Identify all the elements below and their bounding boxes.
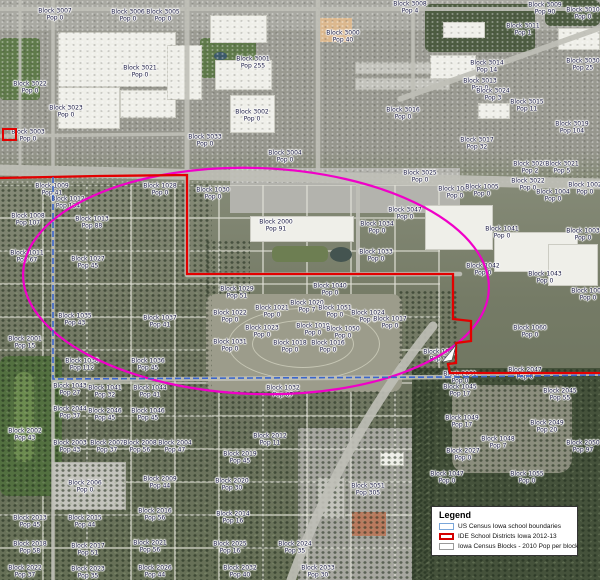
census-block-label: Block 2044 Pop 37 bbox=[53, 406, 86, 419]
census-block-label: Block 3019 Pop 104 bbox=[555, 121, 588, 134]
census-block-label: Block 2032 Pop 40 bbox=[223, 565, 256, 578]
census-block-label: Block 1044 Pop 41 bbox=[133, 385, 166, 398]
census-block-label: Block 1037 Pop 41 bbox=[143, 315, 176, 328]
census-block-label: Block 1005 Pop 0 bbox=[465, 184, 498, 197]
census-block-label: Block 3000 Pop 40 bbox=[326, 30, 359, 43]
legend-title: Legend bbox=[439, 510, 573, 520]
census-block-label: Block 2000 Pop 91 bbox=[259, 219, 292, 232]
legend-item-label: IDE School Districts Iowa 2012-13 bbox=[458, 533, 557, 540]
census-block-label: Block 1035 Pop 43 bbox=[58, 313, 91, 326]
census-block-label: Block 2046 Pop 45 bbox=[88, 408, 121, 421]
census-block-label: Block 2001 Pop 15 bbox=[8, 336, 41, 349]
census-block-label: Block 1051 Pop 0 bbox=[318, 305, 351, 318]
census-block-label: Block 3008 Pop 4 bbox=[393, 1, 426, 14]
census-block-label: Block 1028 Pop 0 bbox=[143, 183, 176, 196]
census-block-label: Block 3021 Pop 0 bbox=[123, 65, 156, 78]
census-block-label: Block 2017 Pop 51 bbox=[71, 543, 104, 556]
gray-block-swatch bbox=[439, 543, 454, 550]
census-block-label: Block 2045 Pop 55 bbox=[543, 388, 576, 401]
census-block-label: Block 2016 Pop 56 bbox=[138, 508, 171, 521]
census-block-label: Block 2014 Pop 16 bbox=[216, 511, 249, 524]
legend-item-census-boundaries: US Census Iowa school boundaries bbox=[439, 523, 573, 530]
census-block-label: Block 3021 Pop 5 bbox=[545, 161, 578, 174]
census-block-label: Block 3023 Pop 0 bbox=[49, 105, 82, 118]
blue-boundary-swatch bbox=[439, 523, 454, 530]
census-block-label: Block 3011 Pop 1 bbox=[506, 23, 539, 36]
census-block-label: Block 2003 Pop 43 bbox=[53, 440, 86, 453]
census-block-label: Block 1032 Pop 67 bbox=[266, 385, 299, 398]
census-block-label: Block 1046 Pop 45 bbox=[131, 408, 164, 421]
census-block-label: Block 1022 Pop 0 bbox=[213, 310, 246, 323]
census-block-label: Block 2019 Pop 45 bbox=[223, 451, 256, 464]
block-labels-layer: Block 3007 Pop 0Block 3006 Pop 0Block 30… bbox=[0, 0, 600, 580]
census-block-label: Block 3047 Pop 0 bbox=[388, 207, 421, 220]
census-block-label: Block 2021 Pop 56 bbox=[133, 540, 166, 553]
census-block-label: Block 3002 Pop 0 bbox=[235, 109, 268, 122]
census-block-label: Block 2026 Pop 44 bbox=[138, 565, 171, 578]
census-block-label: Block 2013 Pop 45 bbox=[13, 515, 46, 528]
census-block-label: Block 2022 Pop 37 bbox=[8, 565, 41, 578]
census-block-label: Block 3005 Pop 0 bbox=[146, 9, 179, 22]
census-block-label: Block 1007 Pop 0 bbox=[571, 288, 600, 301]
census-block-label: Block 1002 Pop 0 bbox=[568, 182, 600, 195]
legend-item-label: US Census Iowa school boundaries bbox=[458, 523, 561, 530]
census-block-label: Block 2049 Pop 20 bbox=[530, 420, 563, 433]
census-block-label: Block 3033 Pop 0 bbox=[188, 134, 221, 147]
census-block-label: Block 2025 Pop 16 bbox=[213, 541, 246, 554]
census-block-label: Block 1034 Pop 0 bbox=[360, 221, 393, 234]
census-block-label: Block 2007 Pop 37 bbox=[90, 440, 123, 453]
census-block-label: Block 1003 Pop 0 bbox=[566, 228, 599, 241]
census-block-label: Block 2009 Pop 44 bbox=[143, 476, 176, 489]
census-block-label: Block 1019 Pop 0 bbox=[296, 323, 329, 336]
census-block-label: Block 1038 Pop 112 bbox=[65, 358, 98, 371]
census-block-label: Block 3020 Pop 2 bbox=[513, 161, 546, 174]
census-block-label: Block 1049 Pop 17 bbox=[445, 415, 478, 428]
census-block-label: Block 3016 Pop 0 bbox=[386, 107, 419, 120]
census-block-label: Block 3010 Pop 0 bbox=[566, 7, 599, 20]
census-block-label: Block 2018 Pop 58 bbox=[13, 541, 46, 554]
census-block-label: Block 3001 Pop 255 bbox=[236, 56, 269, 69]
census-block-label: Block 3015 Pop 11 bbox=[510, 99, 543, 112]
census-block-label: Block 3017 Pop 32 bbox=[460, 137, 493, 150]
census-block-label: Block 1017 Pop 0 bbox=[373, 316, 406, 329]
census-block-label: Block 2002 Pop 43 bbox=[8, 428, 41, 441]
census-block-label: Block 3030 Pop 25 bbox=[566, 58, 599, 71]
census-block-label: Block 2020 Pop 30 bbox=[215, 478, 248, 491]
census-block-label: Block 1042 Pop 0 bbox=[466, 263, 499, 276]
census-block-label: Block 1004 Pop 0 bbox=[536, 189, 569, 202]
census-block-label: Block 3006 Pop 0 bbox=[111, 9, 144, 22]
census-block-label: Block 3024 Pop 3 bbox=[476, 88, 509, 101]
census-block-label: Block 1036 Pop 45 bbox=[131, 358, 164, 371]
census-block-label: Block 2012 Pop 11 bbox=[253, 433, 286, 446]
census-block-label: Block 2006 Pop 0 bbox=[68, 480, 101, 493]
legend-item-ide-districts: IDE School Districts Iowa 2012-13 bbox=[439, 533, 573, 540]
census-block-label: Block 2004 Pop 47 bbox=[158, 440, 191, 453]
census-block-label: Block 1041 Pop 32 bbox=[88, 385, 121, 398]
census-block-label: Block 2050 Pop 97 bbox=[566, 440, 599, 453]
census-block-label: Block 3004 Pop 0 bbox=[268, 150, 301, 163]
census-block-label: Block 1040 Pop 0 bbox=[313, 283, 346, 296]
census-block-label: Block 1043 Pop 27 bbox=[53, 383, 86, 396]
census-block-label: Block 3009 Pop 90 bbox=[528, 2, 561, 15]
census-block-label: Block 1050 Pop 0 bbox=[326, 326, 359, 339]
census-block-label: Block 2023 Pop 35 bbox=[71, 566, 104, 579]
census-block-label: Block 1012 Pop 134 bbox=[51, 196, 84, 209]
census-block-label: Block 1008 Pop 107 bbox=[11, 213, 44, 226]
census-block-label: Block 2008 Pop 56 bbox=[123, 440, 156, 453]
census-block-label: Block 1033 Pop 0 bbox=[359, 249, 392, 262]
census-block-label: Block 1048 Pop 7 bbox=[481, 436, 514, 449]
census-block-label: Block 3022 Pop 0 bbox=[13, 81, 46, 94]
census-block-label: Block 1047 Pop 0 bbox=[430, 471, 463, 484]
census-block-label: Block 1045 Pop 17 bbox=[443, 384, 476, 397]
census-block-label: Block 3025 Pop 0 bbox=[403, 170, 436, 183]
legend-item-census-blocks: Iowa Census Blocks - 2010 Pop per block bbox=[439, 543, 573, 550]
census-block-label: Block 3003 Pop 0 bbox=[11, 129, 44, 142]
aerial-map: Block 3007 Pop 0Block 3006 Pop 0Block 30… bbox=[0, 0, 600, 580]
census-block-label: Block 2024 Pop 35 bbox=[278, 541, 311, 554]
census-block-label: Block 3014 Pop 14 bbox=[470, 60, 503, 73]
census-block-label: Block 2047 Pop 0 bbox=[508, 367, 541, 380]
census-block-label: Block 1013 Pop 88 bbox=[75, 216, 108, 229]
census-block-label: Block 1018 Pop 0 bbox=[273, 340, 306, 353]
legend-panel: Legend US Census Iowa school boundaries … bbox=[431, 506, 578, 556]
census-block-label: Block 3051 Pop 305 bbox=[351, 483, 384, 496]
census-block-label: Block 1031 Pop 0 bbox=[213, 339, 246, 352]
census-block-label: Block 1030 Pop 0 bbox=[196, 187, 229, 200]
legend-item-label: Iowa Census Blocks - 2010 Pop per block bbox=[458, 543, 578, 550]
census-block-label: Block 1061 Pop 35 bbox=[423, 349, 456, 362]
census-block-label: Block 1021 Pop 0 bbox=[255, 305, 288, 318]
census-block-label: Block 1029 Pop 51 bbox=[220, 286, 253, 299]
red-boundary-swatch bbox=[439, 533, 454, 540]
census-block-label: Block 2015 Pop 44 bbox=[68, 515, 101, 528]
census-block-label: Block 2027 Pop 0 bbox=[446, 448, 479, 461]
census-block-label: Block 1016 Pop 0 bbox=[311, 340, 344, 353]
census-block-label: Block 2033 Pop 30 bbox=[301, 565, 334, 578]
census-block-label: Block 1027 Pop 45 bbox=[71, 256, 104, 269]
census-block-label: Block 1011 Pop 67 bbox=[10, 250, 43, 263]
census-block-label: Block 3007 Pop 0 bbox=[38, 8, 71, 21]
census-block-label: Block 1043 Pop 0 bbox=[528, 271, 561, 284]
census-block-label: Block 1060 Pop 0 bbox=[513, 325, 546, 338]
census-block-label: Block 1055 Pop 0 bbox=[510, 471, 543, 484]
census-block-label: Block 1041 Pop 0 bbox=[485, 226, 518, 239]
census-block-label: Block 1023 Pop 0 bbox=[245, 325, 278, 338]
